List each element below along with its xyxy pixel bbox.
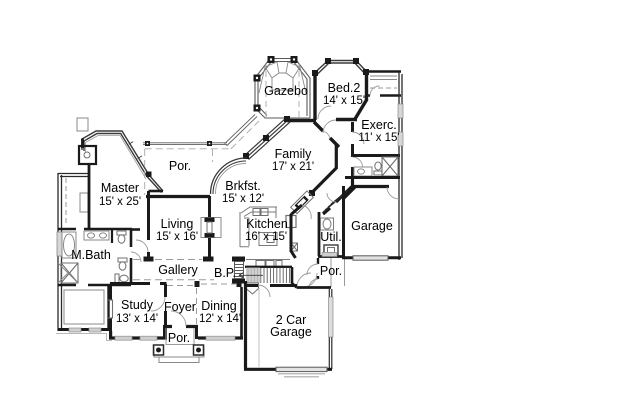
svg-text:15' x 12': 15' x 12' bbox=[222, 193, 264, 205]
svg-text:17' x 21': 17' x 21' bbox=[272, 161, 314, 173]
svg-text:11' x 15': 11' x 15' bbox=[358, 132, 399, 144]
svg-text:Garage: Garage bbox=[270, 325, 312, 339]
svg-text:Util.: Util. bbox=[320, 230, 342, 244]
svg-text:Brkfst.: Brkfst. bbox=[225, 179, 260, 193]
svg-text:M.Bath: M.Bath bbox=[71, 248, 111, 262]
svg-text:14' x 15': 14' x 15' bbox=[323, 95, 365, 107]
svg-text:Dining: Dining bbox=[201, 299, 236, 313]
svg-text:Bed.2: Bed.2 bbox=[328, 81, 361, 95]
svg-text:Family: Family bbox=[275, 147, 313, 161]
svg-text:16' x 15': 16' x 15' bbox=[245, 231, 287, 243]
svg-text:Por.: Por. bbox=[168, 331, 190, 345]
svg-text:12' x 14': 12' x 14' bbox=[199, 313, 241, 325]
svg-text:B.P.: B.P. bbox=[214, 266, 236, 280]
svg-text:Garage: Garage bbox=[351, 219, 393, 233]
svg-text:Exerc.: Exerc. bbox=[361, 118, 396, 132]
svg-text:Por.: Por. bbox=[320, 264, 342, 278]
svg-text:Gallery: Gallery bbox=[158, 263, 198, 277]
svg-text:Kitchen: Kitchen bbox=[246, 217, 288, 231]
svg-text:Foyer: Foyer bbox=[164, 300, 196, 314]
svg-text:Living: Living bbox=[161, 217, 194, 231]
svg-text:15' x 16': 15' x 16' bbox=[156, 231, 198, 243]
svg-text:Study: Study bbox=[121, 298, 154, 312]
svg-text:Gazebo: Gazebo bbox=[264, 84, 308, 98]
svg-text:15' x 25': 15' x 25' bbox=[99, 196, 141, 208]
svg-text:13' x 14': 13' x 14' bbox=[116, 313, 158, 325]
svg-text:Por.: Por. bbox=[169, 159, 191, 173]
svg-text:Master: Master bbox=[101, 181, 139, 195]
